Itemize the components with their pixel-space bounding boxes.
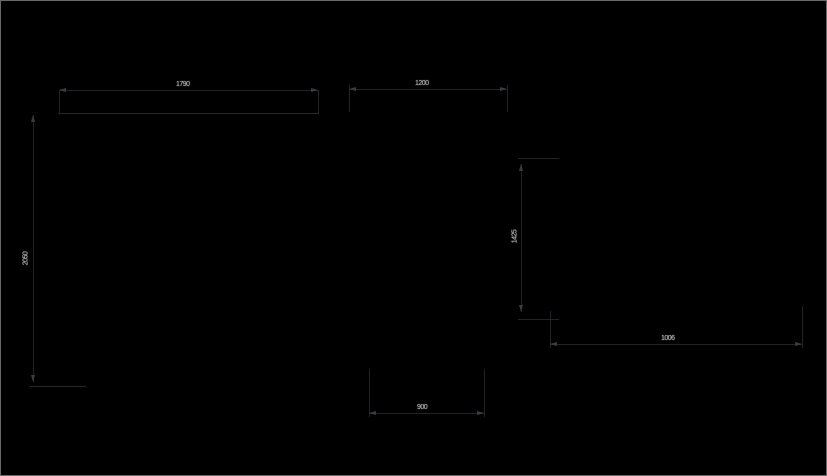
dimension-label: 2050 (22, 252, 29, 266)
arrowhead-icon (31, 375, 35, 382)
dimension-line (59, 90, 318, 91)
arrowhead-icon (31, 115, 35, 122)
dimension-line (33, 115, 34, 382)
dimension-label: 1425 (511, 230, 518, 244)
dimension-line (369, 413, 484, 414)
extension-line (518, 319, 559, 320)
extension-line (59, 90, 60, 113)
arrowhead-icon (519, 305, 523, 312)
dimension-label: 900 (417, 404, 427, 411)
arrowhead-icon (59, 88, 66, 92)
dimension-label: 1200 (415, 80, 429, 87)
arrowhead-icon (311, 88, 318, 92)
arrowhead-icon (369, 411, 376, 415)
dimension-label: 1006 (661, 335, 675, 342)
arrowhead-icon (550, 342, 557, 346)
cad-canvas[interactable]: 1790 1200 2050 1425 1006 900 (0, 0, 827, 476)
arrowhead-icon (349, 87, 356, 91)
object-edge-line (30, 386, 86, 387)
extension-line (484, 369, 485, 417)
object-edge-line (58, 113, 319, 114)
extension-line (518, 158, 559, 159)
extension-line (802, 306, 803, 348)
arrowhead-icon (500, 87, 507, 91)
extension-line (507, 85, 508, 112)
arrowhead-icon (477, 411, 484, 415)
dimension-line (550, 344, 802, 345)
dimension-line (349, 89, 507, 90)
dimension-line (521, 164, 522, 312)
arrowhead-icon (519, 164, 523, 171)
arrowhead-icon (795, 342, 802, 346)
dimension-label: 1790 (176, 81, 190, 88)
extension-line (369, 369, 370, 417)
extension-line (318, 90, 319, 114)
